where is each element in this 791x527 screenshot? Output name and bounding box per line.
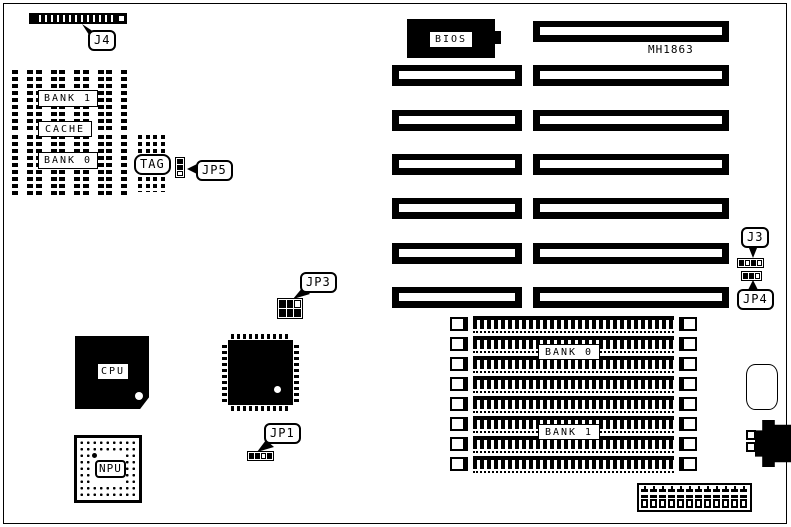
isa-slot-left-3: [392, 198, 522, 219]
cache-dip-chip: [12, 70, 33, 132]
power-connector: [637, 483, 752, 512]
cache-dip-chip: [106, 135, 127, 195]
simm-pin-comb: [473, 316, 674, 333]
isa-slot-right-2: [533, 110, 729, 131]
qfp-pins-left: [222, 343, 227, 402]
isa-slot-left-1: [392, 110, 522, 131]
j3-label: J3: [741, 227, 769, 248]
npu-label: NPU: [95, 460, 126, 478]
simm-socket-0: [450, 316, 697, 333]
jp4-jumper: [741, 271, 762, 281]
simm-latch-left: [450, 397, 465, 411]
part-number: MH1863: [648, 43, 694, 56]
npu-socket: NPU: [74, 435, 142, 503]
qfp-pins-right: [294, 343, 299, 402]
power-pin-4: [677, 486, 685, 509]
simm-latch-left: [450, 357, 465, 371]
isa-slot-right-6: [533, 287, 729, 308]
simm-latch-left: [450, 417, 465, 431]
isa-slot-right-1: [533, 65, 729, 86]
power-pin-6: [695, 486, 703, 509]
npu-socket-center: NPU: [90, 451, 126, 487]
power-pin-9: [722, 486, 730, 509]
simm-latch-right: [682, 337, 697, 351]
cache-bank1-label: BANK 1: [38, 90, 98, 107]
power-pin-2: [659, 486, 667, 509]
qfp-body: [228, 340, 293, 405]
j4-label: J4: [88, 30, 116, 51]
keyboard-connector-pins: [746, 430, 756, 454]
power-pin-1: [650, 486, 658, 509]
jp3-label: JP3: [300, 272, 337, 293]
chipset-qfp-chip: [222, 334, 299, 411]
simm-latch-left: [450, 437, 465, 451]
simm-socket-4: [450, 396, 697, 413]
simm-latch-right: [682, 457, 697, 471]
jp5-label: JP5: [196, 160, 233, 181]
isa-slot-left-5: [392, 287, 522, 308]
power-pin-3: [668, 486, 676, 509]
simm-latch-right: [682, 397, 697, 411]
simm-latch-left: [450, 317, 465, 331]
isa-slot-right-5: [533, 243, 729, 264]
simm-sockets: [450, 316, 697, 473]
cache-label: CACHE: [38, 121, 92, 137]
cache-dip-chip: [106, 70, 127, 132]
simm-socket-7: [450, 456, 697, 473]
jp3-jumper: [277, 298, 303, 319]
cpu-label: CPU: [97, 363, 129, 380]
simm-latch-right: [682, 317, 697, 331]
battery: [746, 364, 778, 410]
simm-bank0-label: BANK 0: [538, 344, 600, 360]
npu-pin1-dot: [92, 453, 97, 458]
cache-dip-chip: [12, 135, 33, 195]
power-pin-5: [686, 486, 694, 509]
isa-slot-right-4: [533, 198, 729, 219]
bios-label: BIOS: [429, 31, 473, 48]
qfp-pins-bottom: [231, 406, 290, 411]
power-connector-pins: [641, 486, 748, 509]
simm-latch-right: [682, 437, 697, 451]
jp5-jumper: [175, 157, 185, 178]
simm-latch-left: [450, 377, 465, 391]
cpu-pin1-dot: [135, 392, 143, 400]
jp1-jumper: [247, 451, 274, 461]
qfp-pins-top: [231, 334, 290, 339]
jp4-label: JP4: [737, 289, 774, 310]
j3-jumper: [737, 258, 764, 268]
tag-label: TAG: [134, 154, 171, 175]
simm-latch-left: [450, 337, 465, 351]
simm-pin-comb: [473, 376, 674, 393]
power-pin-8: [713, 486, 721, 509]
isa-slot-right-3: [533, 154, 729, 175]
bios-chip-tab: [494, 31, 501, 44]
simm-latch-right: [682, 417, 697, 431]
simm-pin-comb: [473, 396, 674, 413]
simm-latch-right: [682, 377, 697, 391]
bios-chip: BIOS: [407, 19, 495, 58]
j4-connector: [29, 13, 127, 24]
qfp-pin1-dot: [274, 386, 281, 393]
simm-bank1-label: BANK 1: [538, 424, 600, 440]
isa-slot-left-2: [392, 154, 522, 175]
simm-pin-comb: [473, 456, 674, 473]
isa-slot-right-0: [533, 21, 729, 42]
cpu-chip: CPU: [75, 336, 149, 409]
power-pin-10: [731, 486, 739, 509]
isa-slot-left-0: [392, 65, 522, 86]
power-pin-7: [704, 486, 712, 509]
simm-latch-left: [450, 457, 465, 471]
power-pin-0: [641, 486, 649, 509]
motherboard-diagram: J4 BANK 1 CACHE BANK 0 TAG JP5 BIOS MH18…: [0, 0, 791, 527]
simm-socket-3: [450, 376, 697, 393]
cache-bank0-label: BANK 0: [38, 152, 98, 169]
simm-latch-right: [682, 357, 697, 371]
isa-slot-left-4: [392, 243, 522, 264]
power-pin-11: [740, 486, 748, 509]
jp1-label: JP1: [264, 423, 301, 444]
